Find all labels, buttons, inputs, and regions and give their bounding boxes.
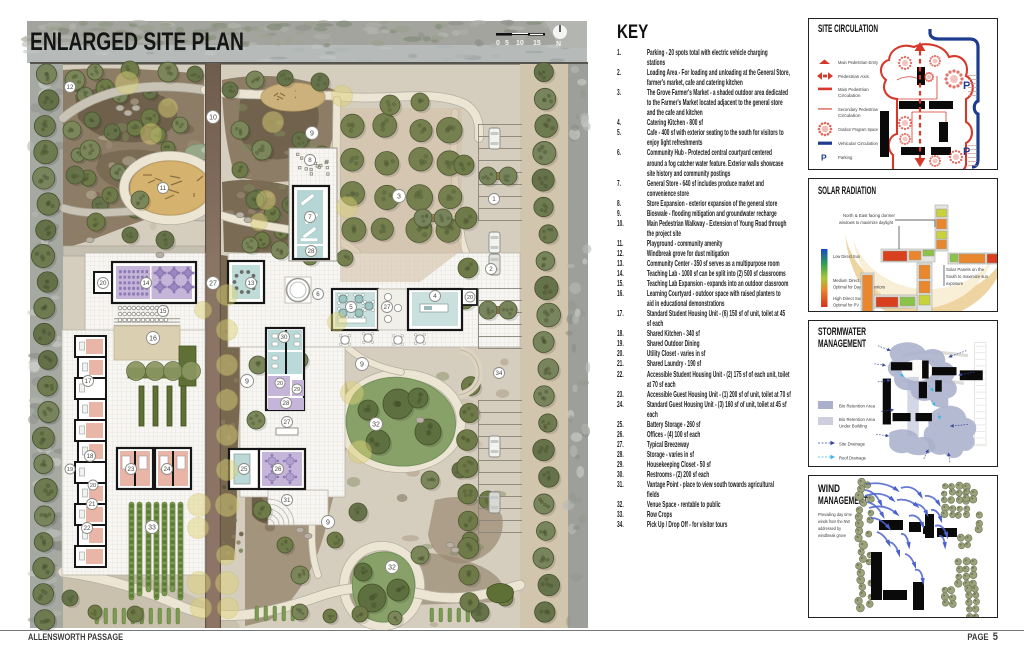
svg-text:30: 30 (281, 334, 288, 341)
svg-text:SITE CIRCULATION: SITE CIRCULATION (818, 23, 878, 35)
svg-text:SOLAR RADIATION: SOLAR RADIATION (818, 185, 876, 197)
svg-text:20: 20 (100, 280, 107, 287)
svg-text:18: 18 (87, 453, 94, 460)
svg-text:Main Pedestrian: Main Pedestrian (838, 87, 869, 92)
svg-text:28: 28 (308, 248, 315, 255)
svg-text:Secondary Pedestrian: Secondary Pedestrian (838, 107, 878, 112)
svg-text:P: P (963, 146, 970, 158)
svg-text:Site Drainage: Site Drainage (839, 442, 865, 447)
svg-text:34: 34 (496, 370, 503, 377)
svg-text:27: 27 (284, 419, 291, 426)
svg-text:6: 6 (316, 291, 320, 298)
svg-text:15: 15 (160, 308, 167, 315)
svg-text:MANAGEMENT: MANAGEMENT (818, 338, 866, 350)
svg-text:26: 26 (275, 466, 282, 473)
svg-text:20: 20 (90, 483, 96, 489)
svg-text:23: 23 (128, 466, 135, 473)
svg-text:15: 15 (533, 40, 541, 47)
svg-text:20: 20 (467, 295, 473, 301)
svg-text:P: P (963, 80, 970, 92)
svg-text:5: 5 (349, 304, 353, 311)
svg-text:Under Building: Under Building (839, 424, 867, 429)
svg-text:N: N (556, 41, 561, 48)
svg-text:Main Pedestrian Entry: Main Pedestrian Entry (838, 60, 879, 65)
svg-text:16: 16 (149, 336, 157, 343)
svg-text:9: 9 (360, 362, 364, 369)
svg-text:9: 9 (310, 131, 314, 138)
svg-text:WIND: WIND (818, 483, 840, 495)
svg-text:Solar Panels on the: Solar Panels on the (946, 267, 984, 272)
svg-text:1: 1 (492, 196, 496, 203)
svg-text:32: 32 (372, 422, 380, 429)
svg-text:8: 8 (308, 157, 312, 164)
svg-text:North & East facing dormer: North & East facing dormer (843, 213, 895, 218)
svg-text:20: 20 (277, 381, 283, 387)
svg-text:Pedestrian Axis: Pedestrian Axis (838, 74, 869, 79)
svg-text:22: 22 (84, 525, 91, 532)
svg-text:windows to maximize daylight: windows to maximize daylight (839, 220, 894, 225)
svg-text:2: 2 (489, 266, 493, 273)
svg-text:14: 14 (143, 280, 150, 287)
svg-text:South to maximize sun: South to maximize sun (946, 274, 988, 279)
svg-text:11: 11 (160, 185, 167, 192)
svg-text:7: 7 (308, 214, 312, 221)
svg-text:High Direct Sun -: High Direct Sun - (833, 296, 865, 301)
svg-text:Optimal for PV: Optimal for PV (833, 303, 860, 308)
svg-text:19: 19 (67, 467, 73, 473)
svg-text:12: 12 (67, 84, 74, 91)
svg-text:21: 21 (89, 501, 96, 508)
svg-text:0: 0 (496, 40, 500, 47)
svg-text:28: 28 (283, 400, 290, 407)
svg-text:9: 9 (326, 520, 330, 527)
svg-text:27: 27 (384, 304, 391, 311)
svg-text:29: 29 (294, 387, 300, 393)
svg-text:4: 4 (433, 293, 437, 300)
svg-text:Prevailing day time: Prevailing day time (818, 512, 852, 517)
svg-text:Circulation: Circulation (838, 93, 861, 98)
svg-text:31: 31 (284, 497, 291, 504)
svg-text:Parking: Parking (838, 155, 853, 160)
svg-text:5: 5 (505, 40, 509, 47)
svg-text:STORMWATER: STORMWATER (818, 326, 866, 338)
svg-text:exposure: exposure (946, 281, 963, 286)
svg-text:Vehicular Circulation: Vehicular Circulation (838, 141, 878, 146)
svg-text:Roof Drainage: Roof Drainage (839, 456, 866, 461)
svg-text:17: 17 (85, 378, 92, 385)
svg-text:27: 27 (209, 281, 217, 288)
svg-text:Optimal for Daylight Monitors: Optimal for Daylight Monitors (833, 285, 886, 290)
svg-text:Circulation: Circulation (838, 113, 861, 118)
svg-text:13: 13 (248, 280, 255, 287)
svg-text:9: 9 (245, 379, 249, 386)
svg-text:3: 3 (397, 194, 401, 201)
svg-text:P: P (821, 153, 827, 163)
svg-text:windbreak grove: windbreak grove (818, 533, 846, 538)
svg-text:Bio Retention Area: Bio Retention Area (839, 404, 875, 409)
svg-text:25: 25 (241, 466, 248, 473)
svg-text:32: 32 (388, 565, 396, 572)
svg-text:24: 24 (164, 466, 171, 473)
svg-text:33: 33 (148, 525, 156, 532)
svg-text:Outdoor Program Space: Outdoor Program Space (838, 127, 878, 132)
svg-text:addressed by: addressed by (818, 526, 842, 531)
svg-text:10: 10 (516, 40, 524, 47)
svg-text:winds from the NW: winds from the NW (818, 519, 851, 524)
svg-text:Bio Retention Area: Bio Retention Area (839, 417, 875, 422)
svg-text:10: 10 (209, 115, 217, 122)
svg-text:Low Direct Sun: Low Direct Sun (833, 254, 860, 259)
